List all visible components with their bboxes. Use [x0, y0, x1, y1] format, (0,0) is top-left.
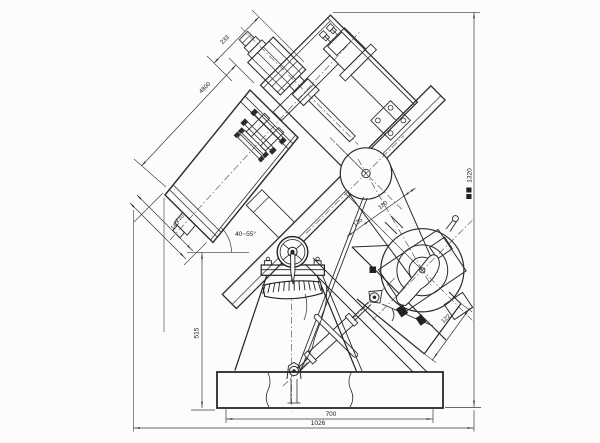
svg-text:40~55°: 40~55° [235, 230, 256, 238]
svg-text:1320: 1320 [467, 168, 474, 183]
svg-text:515: 515 [194, 327, 201, 338]
svg-text:1026: 1026 [311, 420, 326, 427]
svg-text:700: 700 [326, 411, 337, 418]
